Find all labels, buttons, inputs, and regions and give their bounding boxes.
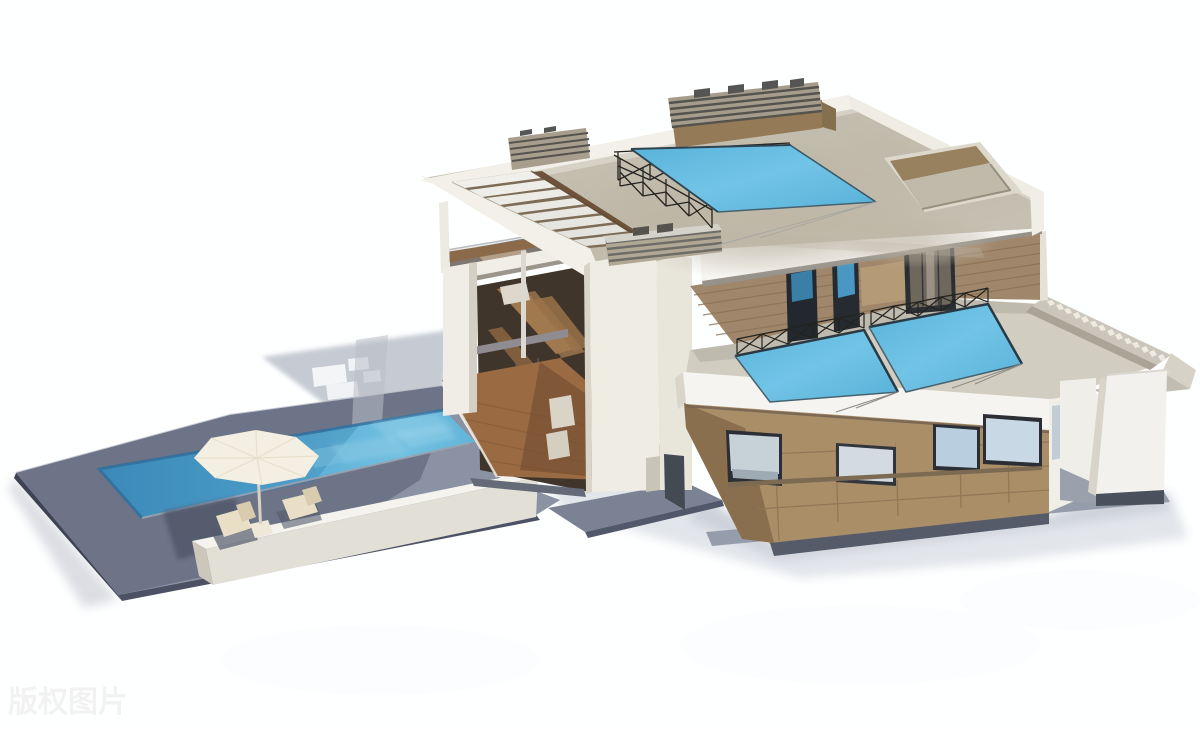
svg-text:版权图片: 版权图片 [8,686,128,719]
